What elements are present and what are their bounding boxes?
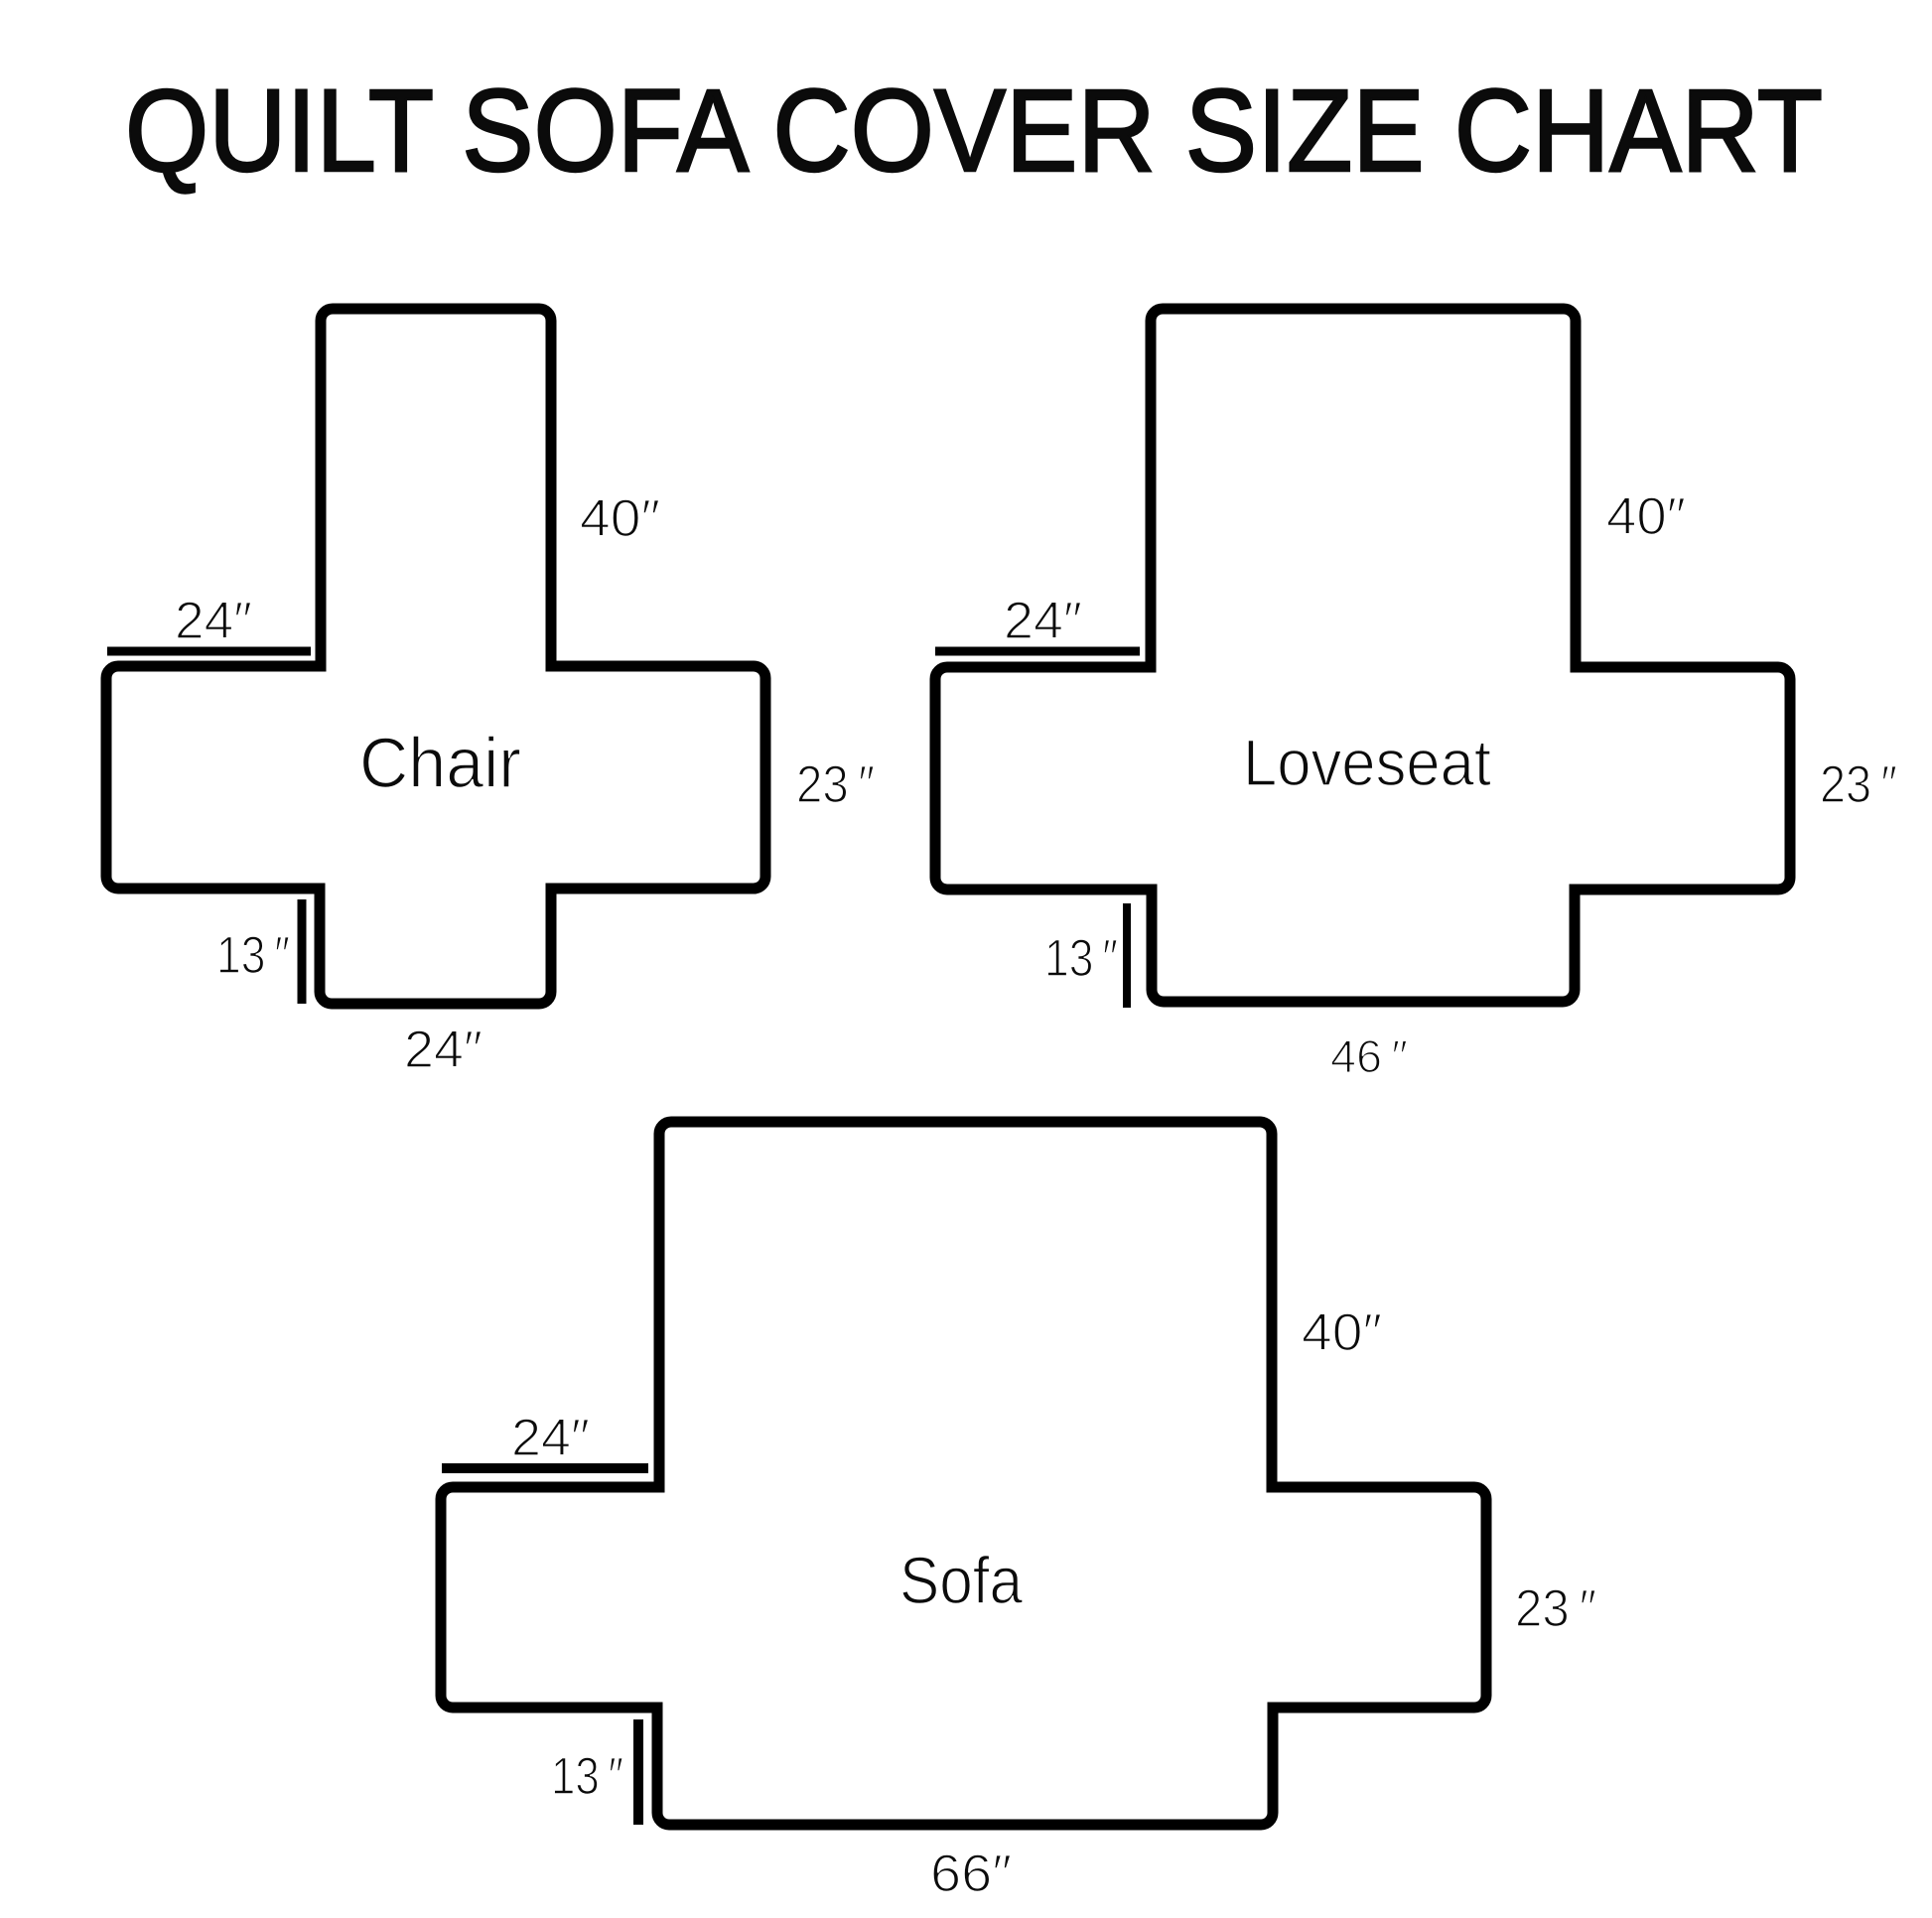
svg-text:Loveseat: Loveseat — [1243, 726, 1491, 799]
svg-text:46 ″: 46 ″ — [1330, 1030, 1408, 1082]
svg-text:24″: 24″ — [175, 592, 252, 650]
svg-text:24″: 24″ — [511, 1409, 590, 1467]
svg-text:23 ″: 23 ″ — [1515, 1579, 1596, 1638]
svg-text:40″: 40″ — [1606, 487, 1686, 546]
svg-text:13 ″: 13 ″ — [551, 1747, 623, 1806]
svg-text:40″: 40″ — [580, 489, 660, 548]
svg-text:Chair: Chair — [359, 725, 521, 803]
svg-text:24″: 24″ — [1004, 592, 1082, 650]
svg-text:13 ″: 13 ″ — [1044, 929, 1118, 988]
svg-text:24″: 24″ — [404, 1021, 483, 1079]
svg-text:Sofa: Sofa — [899, 1544, 1024, 1618]
svg-text:QUILT SOFA COVER SIZE CHART: QUILT SOFA COVER SIZE CHART — [125, 66, 1823, 197]
svg-text:23 ″: 23 ″ — [1820, 755, 1897, 814]
svg-text:66″: 66″ — [930, 1845, 1012, 1903]
svg-text:23 ″: 23 ″ — [796, 755, 875, 814]
svg-text:40″: 40″ — [1302, 1303, 1382, 1362]
svg-text:13 ″: 13 ″ — [216, 926, 290, 985]
